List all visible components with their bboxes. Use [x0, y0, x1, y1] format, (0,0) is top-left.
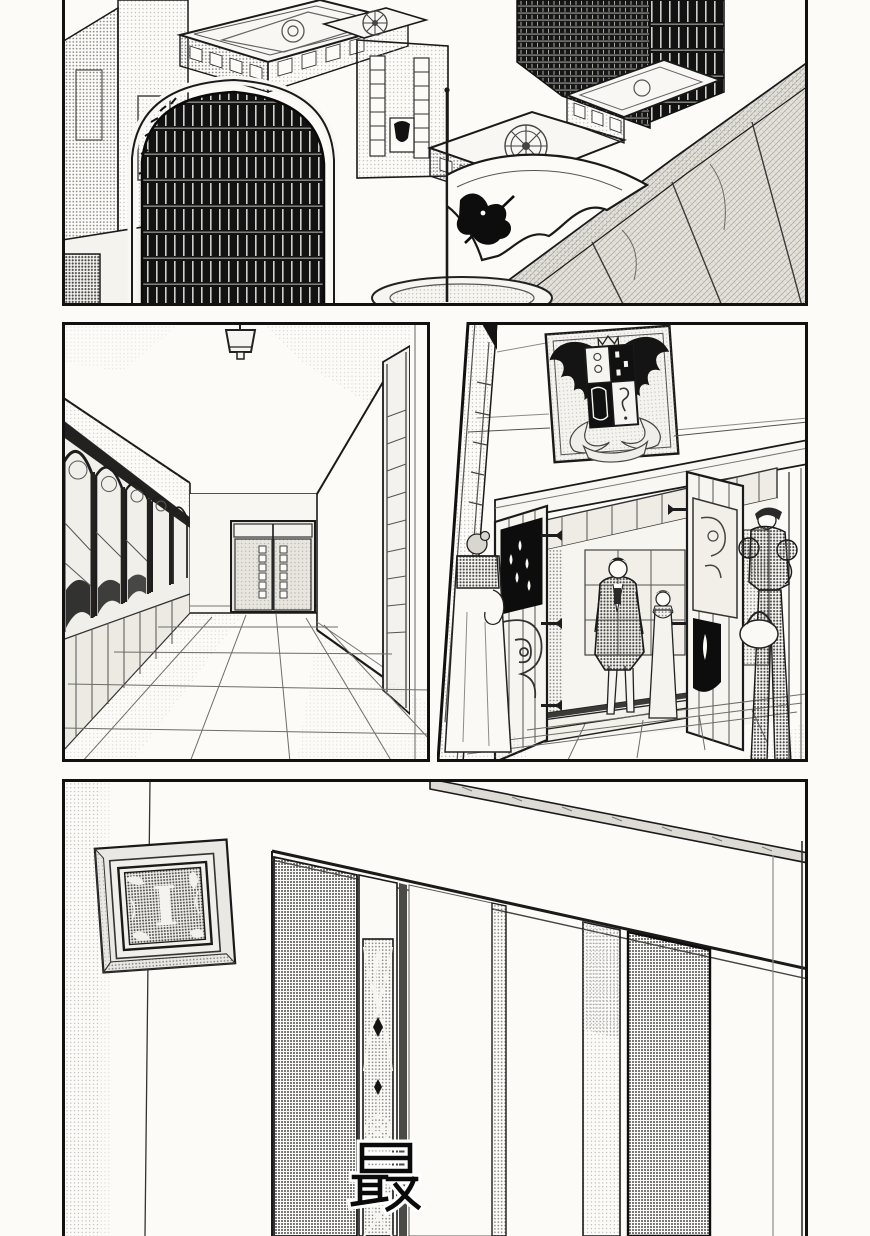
caption-kanji — [353, 1145, 418, 1209]
wall-crest-emblem — [390, 118, 414, 152]
crest-shield — [585, 344, 638, 427]
teardrop-door-panel — [501, 518, 542, 614]
coat-of-arms — [546, 326, 679, 466]
panel-door-closeup: I — [62, 779, 808, 1236]
panel-hallway-interior — [62, 322, 430, 762]
left-wall-shading — [62, 779, 98, 1236]
corridor-double-door — [231, 521, 315, 612]
hallway-drawing — [62, 322, 430, 762]
letter-plaque: I — [95, 840, 235, 973]
panel-aerial-city-view — [62, 0, 808, 306]
slatted-window-frame — [383, 346, 410, 714]
door-closeup-drawing: I — [62, 779, 808, 1236]
entrance-drawing — [437, 322, 808, 762]
aerial-city-drawing — [62, 0, 808, 306]
dark-sliding-door — [274, 857, 357, 1236]
panel-entrance-scene — [437, 322, 808, 762]
door-black-shield — [693, 618, 721, 692]
door-ornate-panel — [693, 498, 737, 618]
gray-post — [492, 903, 506, 1236]
manga-page: I — [0, 0, 870, 1236]
wide-dark-panel — [628, 932, 710, 1236]
narrow-gradient-panel — [583, 922, 620, 1236]
plaque-letter: I — [150, 873, 180, 939]
